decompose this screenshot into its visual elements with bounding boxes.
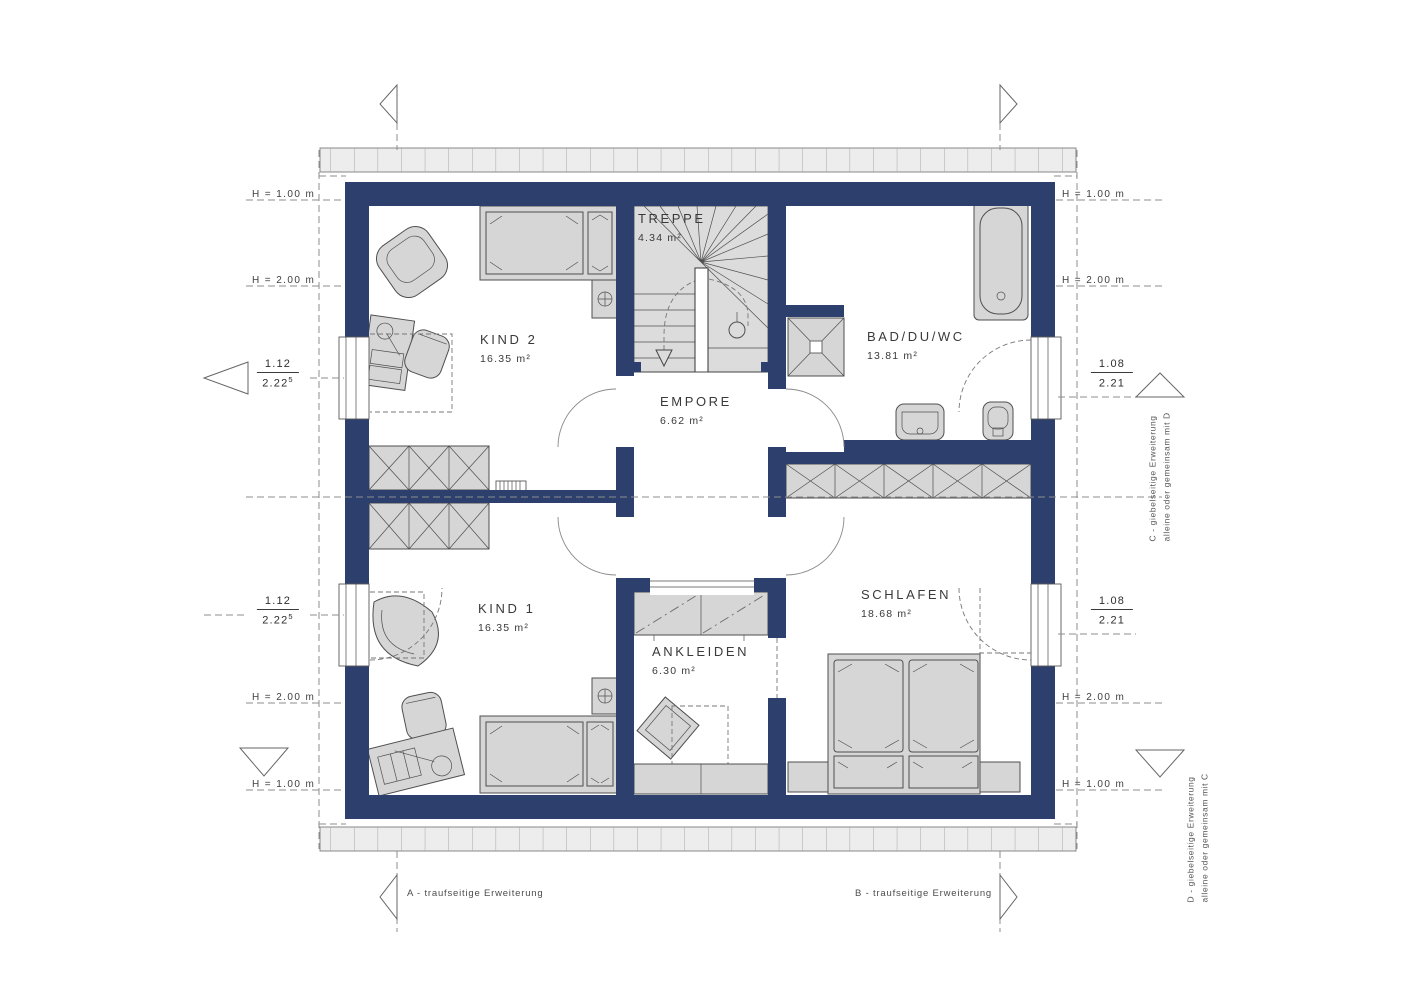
- height-label: H = 2.00 m: [1062, 692, 1125, 703]
- double-bed-schlafen: [788, 654, 1020, 794]
- bed-kind2: [480, 206, 618, 280]
- bathtub: [974, 202, 1028, 320]
- window-right-schlafen: [1031, 584, 1061, 666]
- armchair-kind2: [370, 220, 454, 304]
- corner-chair-kind1: [373, 596, 439, 666]
- roof-band-bottom: [320, 827, 1076, 851]
- dimension-fraction-right-top: 1.08 2.21: [1091, 358, 1133, 390]
- wardrobe-schlafen: [786, 464, 1031, 498]
- bed-kind1: [480, 716, 620, 793]
- nightstand-kind2: [592, 280, 618, 318]
- sink: [896, 404, 944, 440]
- height-label: H = 2.00 m: [252, 692, 315, 703]
- dimension-fraction-left-bottom: 1.12 2.225: [257, 595, 299, 627]
- roof-band-top: [320, 148, 1076, 172]
- floor-plan-page: KIND 2 16.35 m² TREPPE 4.34 m² BAD/DU/WC…: [0, 0, 1414, 1000]
- dimension-fraction-left-top: 1.12 2.225: [257, 358, 299, 390]
- wardrobe-kind2: [369, 446, 489, 490]
- height-label: H = 1.00 m: [252, 189, 315, 200]
- height-label: H = 2.00 m: [252, 275, 315, 286]
- annotation-a: A - traufseitige Erweiterung: [407, 888, 543, 899]
- annotation-d: D - giebelseitige Erweiterung alleine od…: [1184, 752, 1213, 902]
- height-label: H = 2.00 m: [1062, 275, 1125, 286]
- desk-kind1: [368, 728, 465, 796]
- annotation-b: B - traufseitige Erweiterung: [855, 888, 992, 899]
- radiator: [496, 481, 526, 491]
- sideboard-ankleiden: [634, 764, 768, 794]
- wardrobe-ankleiden: [634, 592, 768, 641]
- annotation-c: C - giebelseitige Erweiterung alleine od…: [1146, 391, 1175, 541]
- room-label-empore: EMPORE 6.62 m²: [660, 394, 732, 427]
- shower: [788, 318, 844, 376]
- window-right-bad: [1031, 337, 1061, 419]
- window-left-kind1: [339, 584, 369, 666]
- height-label: H = 1.00 m: [252, 779, 315, 790]
- wardrobe-kind1: [369, 503, 489, 549]
- room-label-treppe: TREPPE 4.34 m²: [638, 211, 706, 244]
- room-label-bad: BAD/DU/WC 13.81 m²: [867, 329, 965, 362]
- toilet: [983, 402, 1013, 440]
- nightstand-kind1: [592, 678, 618, 714]
- height-label: H = 1.00 m: [1062, 189, 1125, 200]
- sliding-door-ankleiden: [650, 575, 754, 595]
- room-label-kind2: KIND 2 16.35 m²: [480, 332, 538, 365]
- dimension-fraction-right-bottom: 1.08 2.21: [1091, 595, 1133, 627]
- height-label: H = 1.00 m: [1062, 779, 1125, 790]
- room-label-ankleiden: ANKLEIDEN 6.30 m²: [652, 644, 749, 677]
- room-label-schlafen: SCHLAFEN 18.68 m²: [861, 587, 951, 620]
- room-label-kind1: KIND 1 16.35 m²: [478, 601, 536, 634]
